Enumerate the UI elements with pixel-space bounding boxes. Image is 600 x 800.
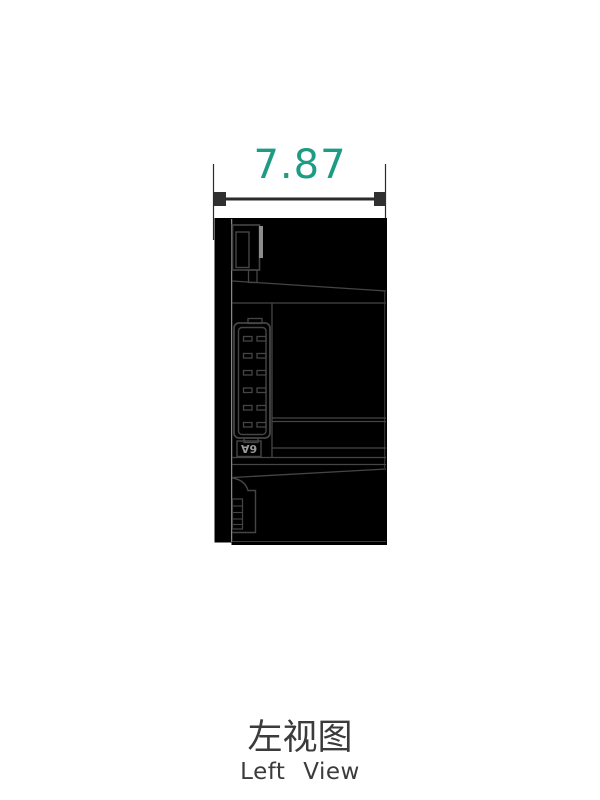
device-front-column [215,218,232,543]
connector-rating-label: 6A [237,441,261,457]
dimension-endpoint-left [214,192,226,206]
technical-drawing-canvas: 7.87 6A 左视图 Left View [0,0,600,800]
device-left-view [215,218,388,545]
caption-english: Left View [0,760,600,785]
dimension-endpoint-right [374,192,386,206]
dimension-value: 7.87 [215,144,385,186]
bracket-tab [259,226,263,258]
caption-chinese: 左视图 [0,718,600,758]
left-view-drawing [0,0,600,800]
